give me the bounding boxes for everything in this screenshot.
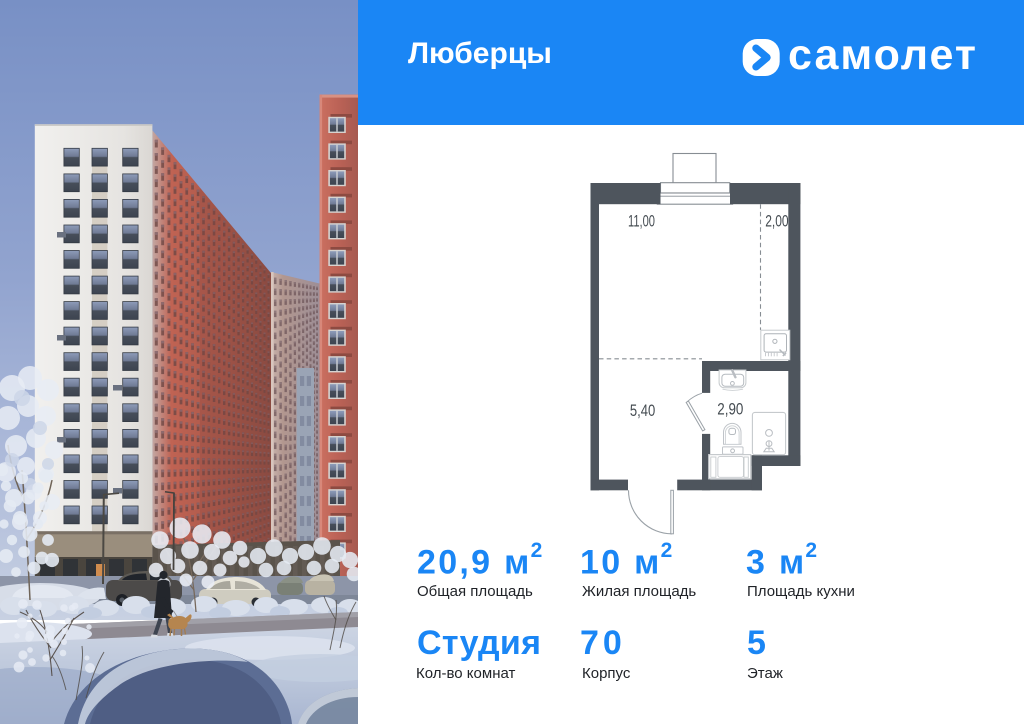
svg-text:11,00: 11,00 xyxy=(628,213,655,231)
svg-text:2,00: 2,00 xyxy=(765,212,788,230)
svg-text:5,40: 5,40 xyxy=(630,402,655,420)
svg-text:2,90: 2,90 xyxy=(717,401,743,419)
